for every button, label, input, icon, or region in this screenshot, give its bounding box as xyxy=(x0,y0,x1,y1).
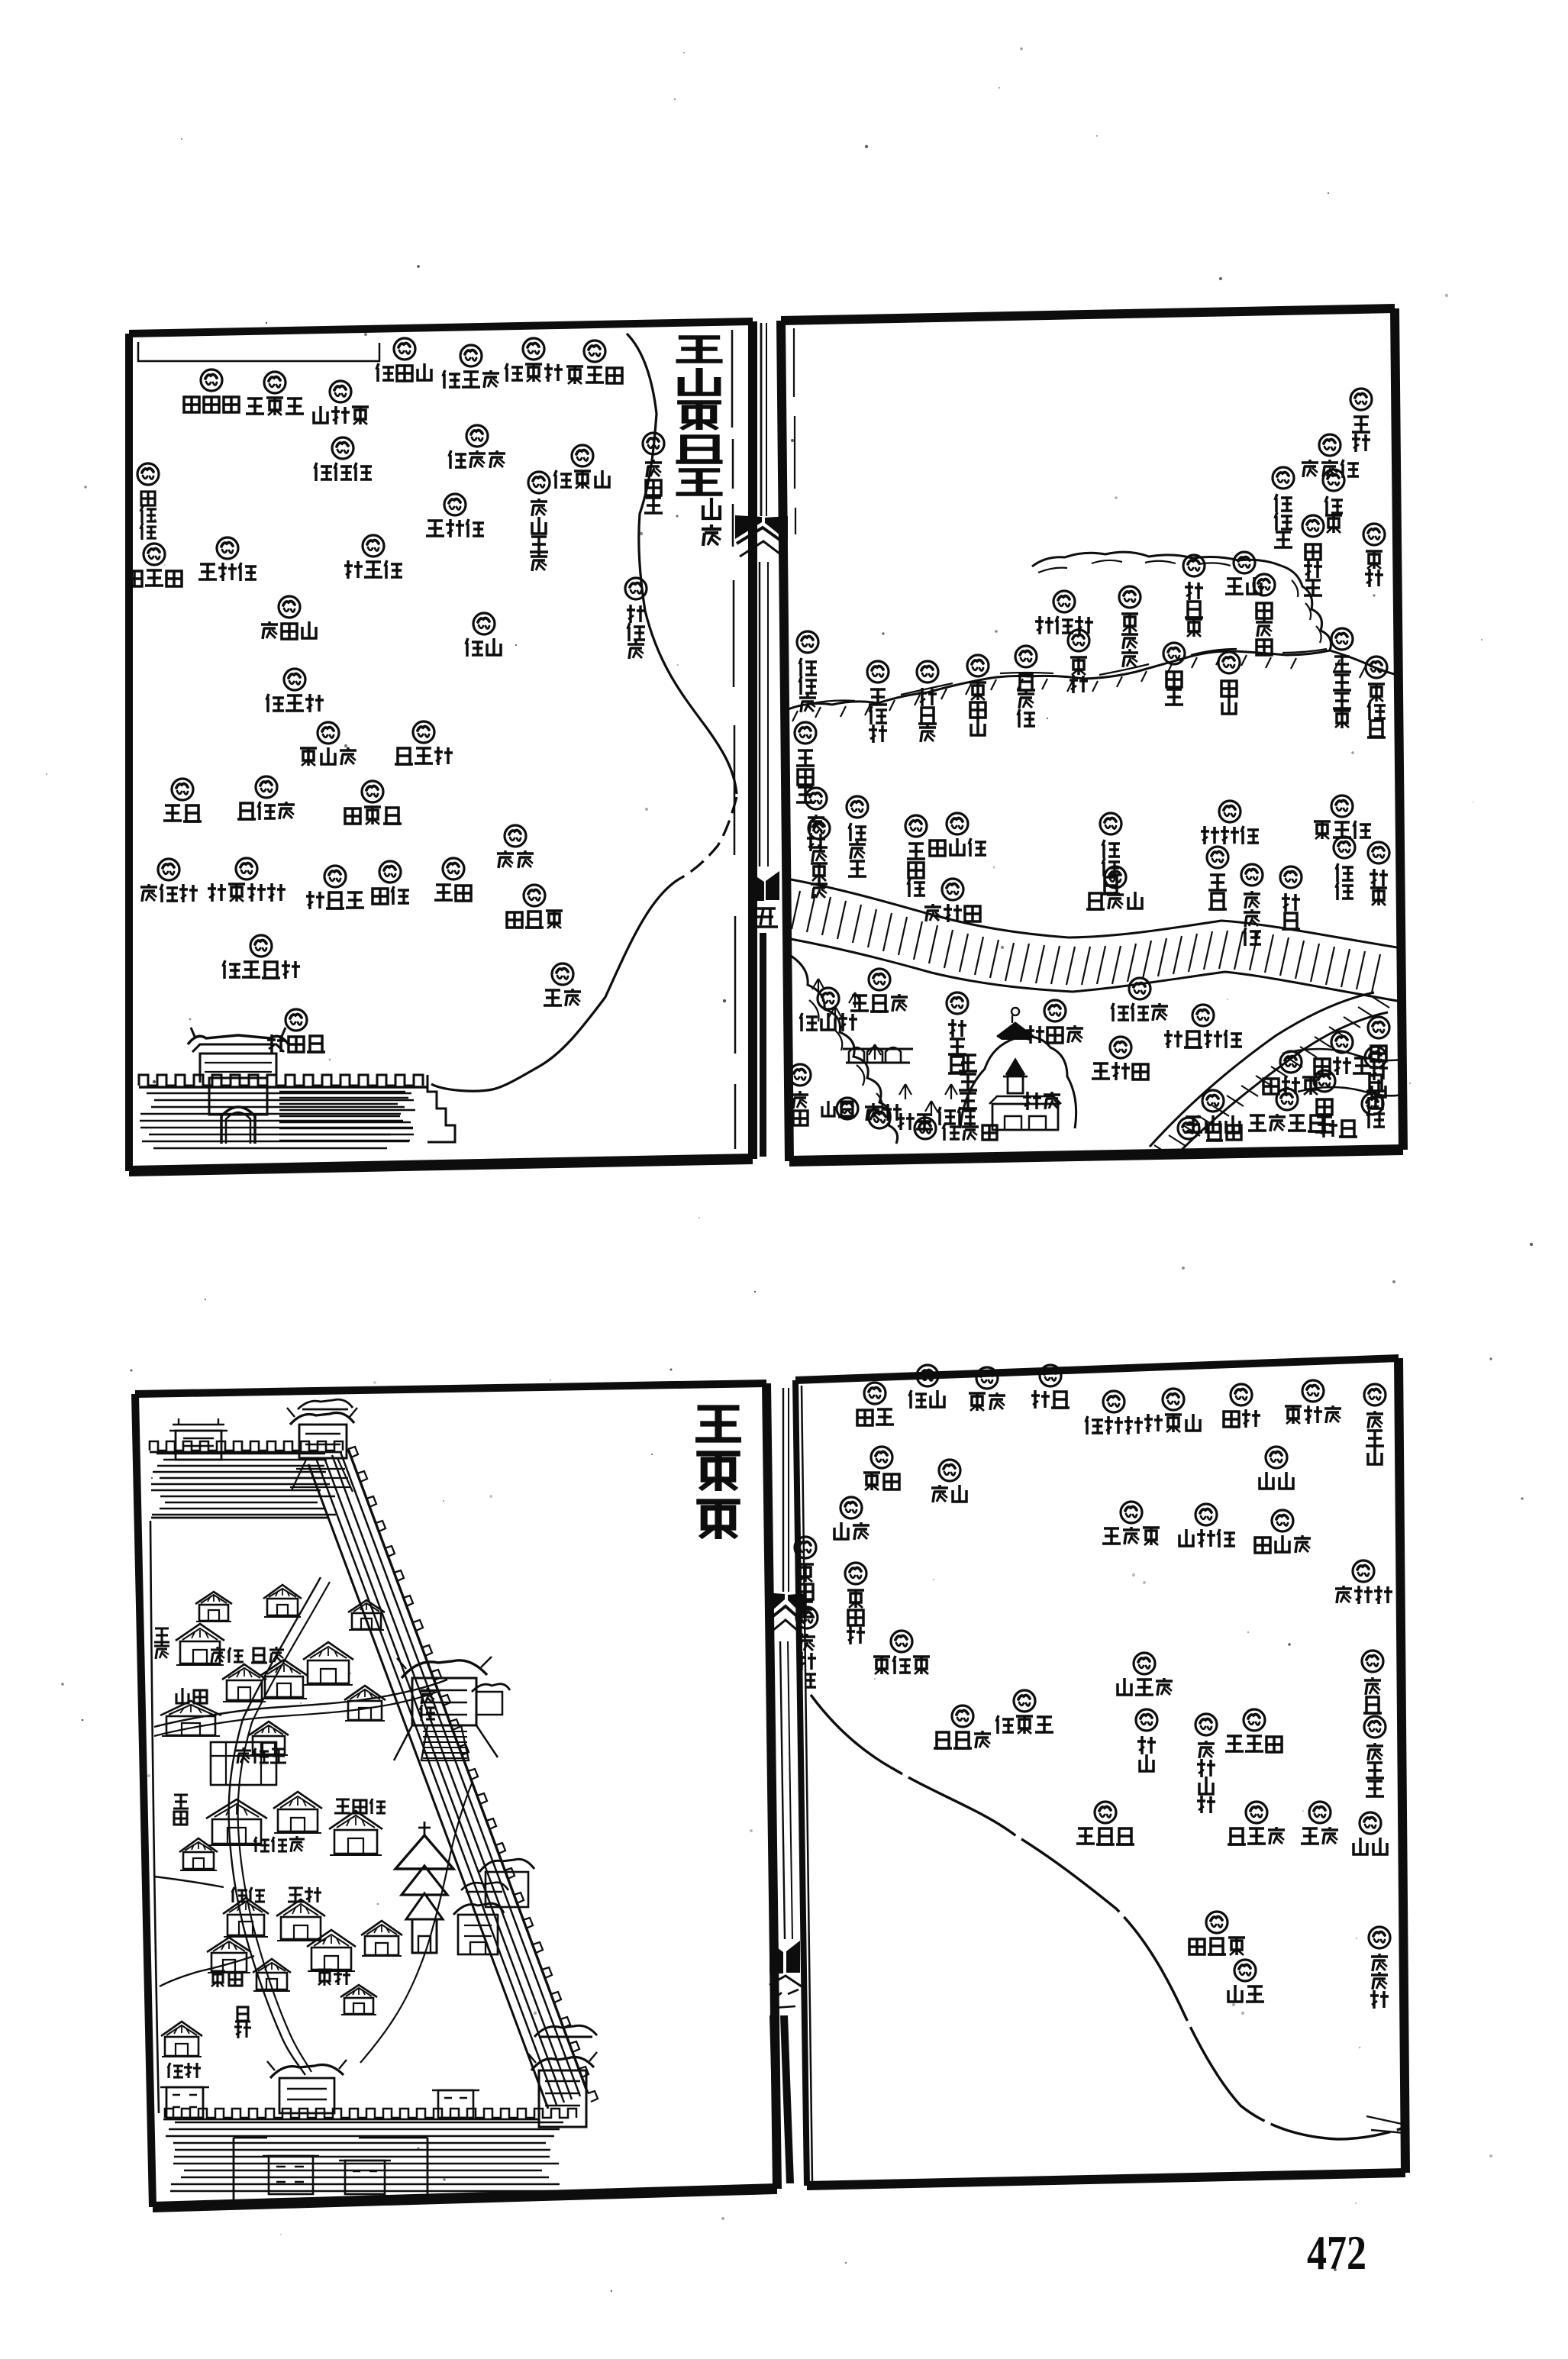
svg-text:472: 472 xyxy=(1307,2225,1366,2280)
